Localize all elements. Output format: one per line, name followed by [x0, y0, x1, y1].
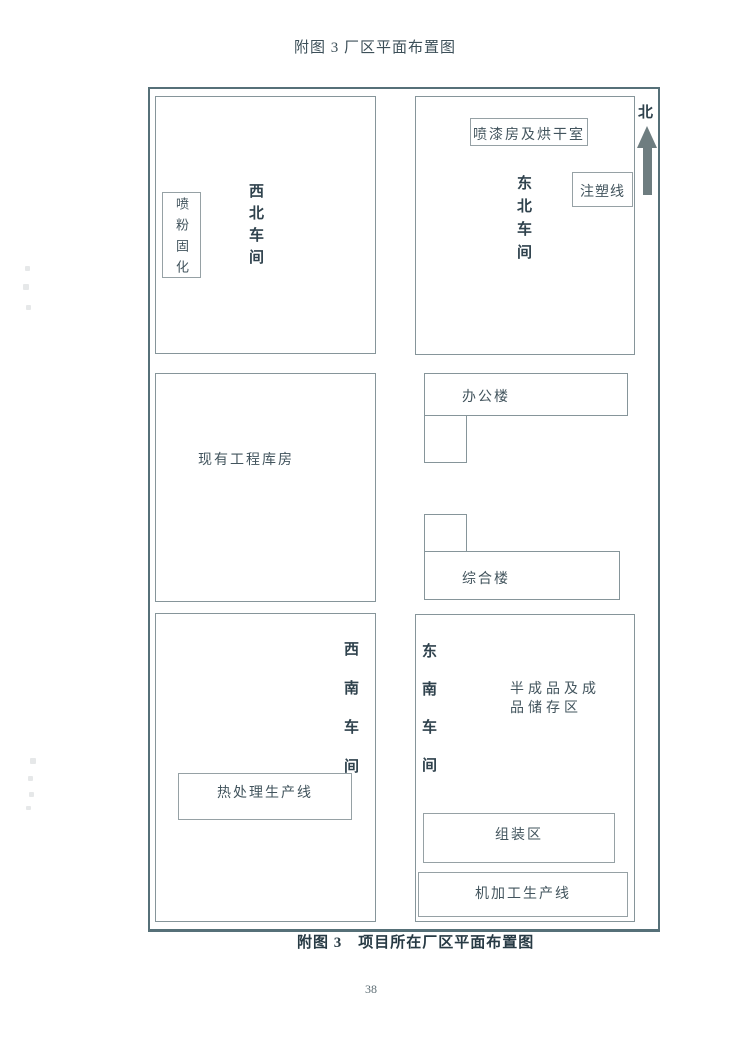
assembly-area-label: 组装区 — [424, 824, 614, 844]
injection-line-box: 注塑线 — [572, 172, 633, 207]
powder-curing-label: 喷粉固化 — [175, 197, 188, 281]
office-building — [424, 373, 628, 416]
complex-building-annex — [424, 514, 467, 552]
heat-treatment-box: 热处理生产线 — [178, 773, 352, 820]
nw-workshop-label: 西北车间 — [247, 183, 262, 271]
spray-paint-room-label: 喷漆房及烘干室 — [471, 124, 587, 144]
scan-artifact — [28, 776, 33, 781]
scan-artifact — [26, 305, 31, 310]
complex-building — [424, 551, 620, 600]
injection-line-label: 注塑线 — [573, 181, 632, 201]
scan-artifact — [26, 806, 31, 810]
scan-artifact — [30, 758, 36, 764]
ne-workshop-label: 东北车间 — [515, 175, 530, 267]
north-label: 北 — [638, 101, 653, 122]
scan-artifact — [25, 266, 30, 271]
machining-line-label: 机加工生产线 — [419, 883, 627, 903]
storage-area-label: 半成品及成品储存区 — [510, 680, 606, 718]
office-building-label: 办公楼 — [462, 386, 510, 406]
office-building-annex — [424, 415, 467, 463]
figure-caption: 附图 3 项目所在厂区平面布置图 — [297, 931, 534, 952]
warehouse-label: 现有工程库房 — [198, 449, 294, 469]
warehouse — [155, 373, 376, 602]
scan-artifact — [29, 792, 34, 797]
document-page: { "page": { "title": "附图 3 厂区平面布置图", "ca… — [0, 0, 750, 1050]
machining-line-box: 机加工生产线 — [418, 872, 628, 917]
assembly-area-box: 组装区 — [423, 813, 615, 863]
figure-title: 附图 3 厂区平面布置图 — [0, 36, 750, 57]
spray-paint-room-box: 喷漆房及烘干室 — [470, 118, 588, 146]
heat-treatment-label: 热处理生产线 — [179, 782, 351, 802]
page-number: 38 — [365, 982, 377, 997]
se-workshop-label: 东南车间 — [420, 643, 435, 795]
scan-artifact — [23, 284, 29, 290]
complex-building-label: 综合楼 — [462, 568, 510, 588]
